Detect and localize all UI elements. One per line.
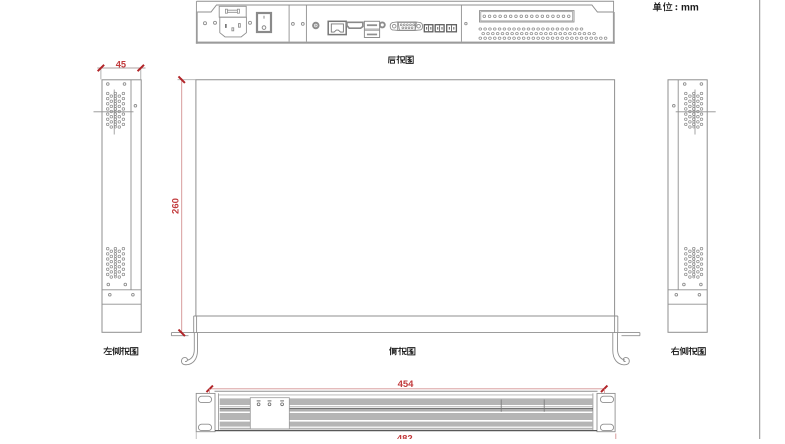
svg-text:482: 482 — [397, 433, 413, 439]
svg-text:454: 454 — [398, 379, 415, 390]
svg-text:260: 260 — [171, 198, 182, 214]
svg-text:mm: mm — [681, 3, 699, 14]
svg-text:45: 45 — [116, 60, 126, 70]
